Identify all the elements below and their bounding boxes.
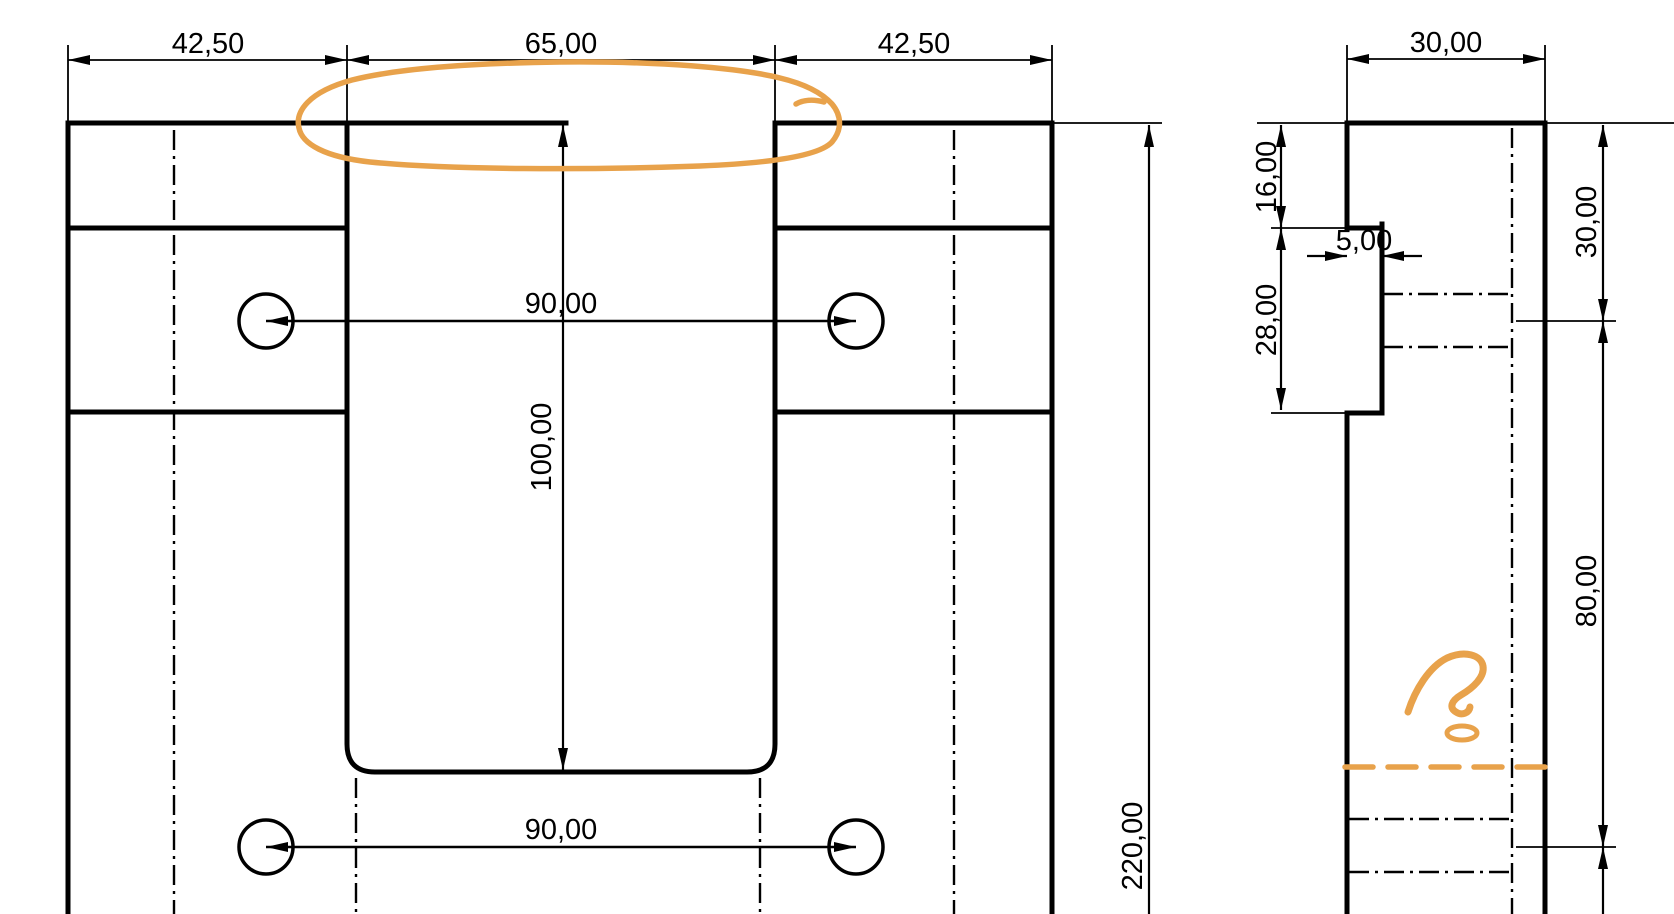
- side-view: 30,00 16,00 28,00 5,00 30,00 80,00: [1251, 27, 1674, 914]
- highlight-ellipse: [298, 62, 839, 169]
- dim-step-depth: 5,00: [1336, 225, 1392, 257]
- front-holes: [239, 294, 883, 874]
- dim-top-right: 42,50: [878, 28, 951, 60]
- side-extension-lines: [1257, 45, 1674, 914]
- dim-hole-offset-top: 30,00: [1571, 186, 1603, 259]
- dim-hole-row-spacing: 80,00: [1571, 555, 1603, 628]
- drawing-page: 42,50 65,00 42,50 90,00 90,00 100,00 220…: [0, 0, 1674, 914]
- dim-top-left: 42,50: [172, 28, 245, 60]
- front-extension-lines: [68, 45, 1162, 914]
- question-mark-dot: [1447, 726, 1477, 740]
- slot-outline: [347, 123, 775, 772]
- dim-side-width: 30,00: [1410, 27, 1483, 59]
- dim-top-center: 65,00: [525, 28, 598, 60]
- dim-step-height: 28,00: [1251, 284, 1283, 357]
- drawing-canvas: 42,50 65,00 42,50 90,00 90,00 100,00 220…: [0, 0, 1674, 914]
- dim-hole-spacing-lower: 90,00: [525, 814, 598, 846]
- highlight-ellipse-tail: [796, 100, 824, 104]
- dim-slot-depth: 100,00: [526, 403, 558, 492]
- dim-hole-spacing-upper: 90,00: [525, 288, 598, 320]
- front-part-outline: [68, 123, 1052, 914]
- dim-total-height: 220,00: [1117, 802, 1149, 891]
- dim-step-offset: 16,00: [1251, 141, 1283, 214]
- question-mark-scribble: [1408, 654, 1483, 714]
- front-view: 42,50 65,00 42,50 90,00 90,00 100,00 220…: [68, 28, 1162, 914]
- side-dim-arrows: [1276, 54, 1608, 869]
- front-dim-arrows: [68, 55, 1154, 852]
